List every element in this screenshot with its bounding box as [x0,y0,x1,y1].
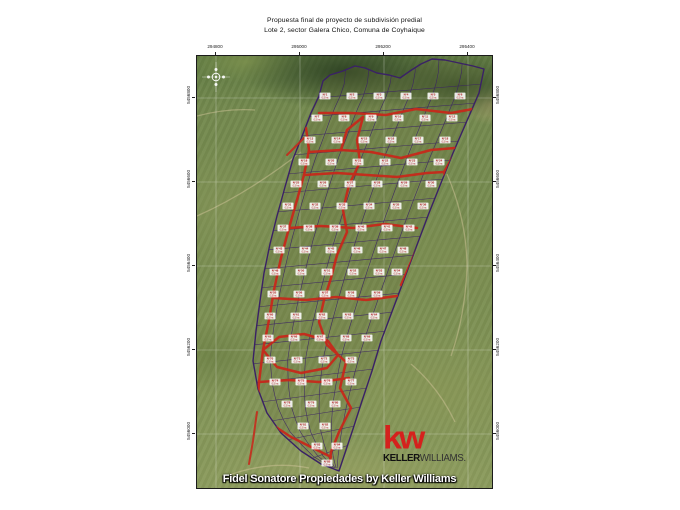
svg-text:0,5 ha: 0,5 ha [308,405,315,408]
lot-label: N°30,5 ha [374,93,385,100]
lot-label: N°750,5 ha [296,379,307,386]
svg-text:0,5 ha: 0,5 ha [348,361,355,364]
northing-label-left: 5456000 [186,422,191,440]
lot-label: N°730,5 ha [346,357,357,364]
lot-label: N°130,5 ha [305,137,316,144]
svg-text:0,5 ha: 0,5 ha [442,141,449,144]
svg-text:0,5 ha: 0,5 ha [364,339,371,342]
svg-text:0,5 ha: 0,5 ha [332,229,339,232]
tick-mark [493,349,496,350]
svg-text:0,5 ha: 0,5 ha [294,361,301,364]
lot-label: N°440,5 ha [300,247,311,254]
svg-text:0,5 ha: 0,5 ha [349,97,356,100]
lot-label: N°400,5 ha [356,225,367,232]
lot-label: N°500,5 ha [296,269,307,276]
svg-text:0,5 ha: 0,5 ha [420,207,427,210]
svg-text:0,5 ha: 0,5 ha [374,185,381,188]
svg-text:0,5 ha: 0,5 ha [321,361,328,364]
lot-label: N°140,5 ha [332,137,343,144]
svg-text:0,5 ha: 0,5 ha [291,339,298,342]
svg-text:0,5 ha: 0,5 ha [300,427,307,430]
svg-text:0,5 ha: 0,5 ha [306,229,313,232]
easting-label: 294800 [207,44,222,49]
svg-text:0,5 ha: 0,5 ha [339,207,346,210]
svg-text:0,5 ha: 0,5 ha [400,251,407,254]
svg-text:0,5 ha: 0,5 ha [324,464,331,467]
kw-logo-icon: kw [383,426,466,451]
svg-text:0,5 ha: 0,5 ha [348,295,355,298]
northing-label-left: 5456600 [186,170,191,188]
svg-text:0,5 ha: 0,5 ha [312,207,319,210]
lot-label: N°280,5 ha [372,181,383,188]
svg-text:0,5 ha: 0,5 ha [366,207,373,210]
lot-label: N°60,5 ha [455,93,466,100]
lot-label: N°800,5 ha [330,401,341,408]
svg-text:0,5 ha: 0,5 ha [371,317,378,320]
svg-text:0,5 ha: 0,5 ha [293,317,300,320]
lot-label: N°160,5 ha [386,137,397,144]
svg-text:0,5 ha: 0,5 ha [322,97,329,100]
lot-label: N°810,5 ha [298,423,309,430]
lot-label: N°430,5 ha [274,247,285,254]
svg-text:0,5 ha: 0,5 ha [301,163,308,166]
svg-text:0,5 ha: 0,5 ha [374,295,381,298]
lot-label: N°50,5 ha [428,93,439,100]
easting-label: 295200 [375,44,390,49]
lot-label: N°600,5 ha [265,313,276,320]
tick-mark [192,181,195,182]
lot-label: N°660,5 ha [289,335,300,342]
lot-label: N°480,5 ha [398,247,409,254]
svg-text:0,5 ha: 0,5 ha [430,97,437,100]
northing-label-left: 5456200 [186,338,191,356]
svg-text:0,5 ha: 0,5 ha [296,295,303,298]
svg-text:0,5 ha: 0,5 ha [345,317,352,320]
svg-text:0,5 ha: 0,5 ha [324,383,331,386]
lot-label: N°170,5 ha [413,137,424,144]
svg-text:0,5 ha: 0,5 ha [322,295,329,298]
lot-label: N°380,5 ha [304,225,315,232]
svg-text:0,5 ha: 0,5 ha [298,273,305,276]
svg-text:0,5 ha: 0,5 ha [280,229,287,232]
northing-label-right: 5456800 [495,86,500,104]
svg-text:0,5 ha: 0,5 ha [314,447,321,450]
tick-mark [493,433,496,434]
lot-label: N°710,5 ha [292,357,303,364]
svg-text:0,5 ha: 0,5 ha [324,273,331,276]
lot-label: N°10,5 ha [320,93,331,100]
lot-label: N°620,5 ha [317,313,328,320]
svg-text:0,5 ha: 0,5 ha [267,317,274,320]
svg-text:0,5 ha: 0,5 ha [361,141,368,144]
northing-label-right: 5456000 [495,422,500,440]
svg-text:0,5 ha: 0,5 ha [322,427,329,430]
svg-text:0,5 ha: 0,5 ha [409,163,416,166]
tick-mark [493,97,496,98]
svg-text:0,5 ha: 0,5 ha [376,273,383,276]
tick-mark [192,265,195,266]
lot-label: N°510,5 ha [322,269,333,276]
svg-text:0,5 ha: 0,5 ha [350,273,357,276]
svg-text:0,5 ha: 0,5 ha [293,185,300,188]
northing-label-left: 5456400 [186,254,191,272]
svg-text:0,5 ha: 0,5 ha [348,383,355,386]
svg-text:0,5 ha: 0,5 ha [394,273,401,276]
tick-mark [493,265,496,266]
lot-label: N°320,5 ha [310,203,321,210]
lot-label: N°560,5 ha [294,291,305,298]
lot-label: N°200,5 ha [326,159,337,166]
svg-text:0,5 ha: 0,5 ha [395,119,402,122]
lot-label: N°670,5 ha [315,335,326,342]
svg-text:0,5 ha: 0,5 ha [382,163,389,166]
lot-label: N°790,5 ha [306,401,317,408]
svg-text:0,5 ha: 0,5 ha [341,119,348,122]
svg-text:0,5 ha: 0,5 ha [401,185,408,188]
lot-label: N°830,5 ha [312,443,323,450]
svg-text:0,5 ha: 0,5 ha [320,185,327,188]
svg-text:0,5 ha: 0,5 ha [272,273,279,276]
lot-label: N°530,5 ha [374,269,385,276]
svg-text:0,5 ha: 0,5 ha [272,383,279,386]
lot-label: N°230,5 ha [407,159,418,166]
svg-text:0,5 ha: 0,5 ha [314,119,321,122]
lot-label: N°520,5 ha [348,269,359,276]
tick-mark [192,349,195,350]
lot-label: N°640,5 ha [369,313,380,320]
svg-text:0,5 ha: 0,5 ha [328,163,335,166]
svg-text:0,5 ha: 0,5 ha [284,405,291,408]
lot-label: N°360,5 ha [418,203,429,210]
lot-label: N°550,5 ha [268,291,279,298]
northing-label-right: 5456400 [495,254,500,272]
lot-label: N°770,5 ha [346,379,357,386]
svg-text:0,5 ha: 0,5 ha [415,141,422,144]
lot-label: N°110,5 ha [420,115,431,122]
lot-label: N°840,5 ha [332,443,343,450]
lot-label: N°150,5 ha [359,137,370,144]
tick-mark [192,433,195,434]
svg-text:0,5 ha: 0,5 ha [298,383,305,386]
lot-label: N°300,5 ha [426,181,437,188]
svg-text:0,5 ha: 0,5 ha [388,141,395,144]
lot-label: N°470,5 ha [378,247,389,254]
svg-text:0,5 ha: 0,5 ha [334,141,341,144]
lot-label: N°240,5 ha [434,159,445,166]
lot-label: N°330,5 ha [337,203,348,210]
svg-text:0,5 ha: 0,5 ha [393,207,400,210]
lot-label: N°740,5 ha [270,379,281,386]
lot-label: N°780,5 ha [282,401,293,408]
svg-text:0,5 ha: 0,5 ha [358,229,365,232]
lot-label: N°630,5 ha [343,313,354,320]
svg-text:0,5 ha: 0,5 ha [276,251,283,254]
svg-text:0,5 ha: 0,5 ha [403,97,410,100]
svg-text:0,5 ha: 0,5 ha [332,405,339,408]
lot-label: N°590,5 ha [372,291,383,298]
keller-williams-logo: kw KELLERWILLIAMS. [383,425,466,463]
lot-label: N°570,5 ha [320,291,331,298]
northing-label-left: 5456800 [186,86,191,104]
svg-text:0,5 ha: 0,5 ha [428,185,435,188]
svg-text:0,5 ha: 0,5 ha [380,251,387,254]
easting-label: 295400 [459,44,474,49]
svg-text:0,5 ha: 0,5 ha [368,119,375,122]
svg-text:0,5 ha: 0,5 ha [265,339,272,342]
northing-label-right: 5456200 [495,338,500,356]
lot-label: N°20,5 ha [347,93,358,100]
svg-text:0,5 ha: 0,5 ha [436,163,443,166]
svg-text:0,5 ha: 0,5 ha [457,97,464,100]
svg-text:0,5 ha: 0,5 ha [307,141,314,144]
svg-text:0,5 ha: 0,5 ha [354,251,361,254]
lot-label: N°260,5 ha [318,181,329,188]
map-caption: Fidel Sonatore Propiedades by Keller Wil… [197,473,482,485]
svg-text:0,5 ha: 0,5 ha [285,207,292,210]
lot-label: N°70,5 ha [312,115,323,122]
lot-label: N°390,5 ha [330,225,341,232]
page: Propuesta final de proyecto de subdivisi… [0,0,680,510]
lot-label: N°410,5 ha [382,225,393,232]
svg-text:0,5 ha: 0,5 ha [406,229,413,232]
svg-text:0,5 ha: 0,5 ha [334,447,341,450]
lot-label: N°610,5 ha [291,313,302,320]
lot-label: N°250,5 ha [291,181,302,188]
lot-label: N°490,5 ha [270,269,281,276]
lot-label: N°720,5 ha [319,357,330,364]
svg-text:0,5 ha: 0,5 ha [302,251,309,254]
lot-label: N°350,5 ha [391,203,402,210]
lot-label: N°310,5 ha [283,203,294,210]
lot-label: N°340,5 ha [364,203,375,210]
svg-text:0,5 ha: 0,5 ha [449,119,456,122]
svg-text:0,5 ha: 0,5 ha [347,185,354,188]
lot-label: N°270,5 ha [345,181,356,188]
lot-label: N°580,5 ha [346,291,357,298]
svg-text:0,5 ha: 0,5 ha [267,361,274,364]
lot-label: N°540,5 ha [392,269,403,276]
lot-label: N°460,5 ha [352,247,363,254]
lot-label: N°100,5 ha [393,115,404,122]
lot-label: N°370,5 ha [278,225,289,232]
easting-label: 295000 [291,44,306,49]
svg-text:0,5 ha: 0,5 ha [376,97,383,100]
svg-text:0,5 ha: 0,5 ha [319,317,326,320]
svg-text:0,5 ha: 0,5 ha [343,339,350,342]
lot-label: N°680,5 ha [341,335,352,342]
lot-label: N°650,5 ha [263,335,274,342]
svg-text:0,5 ha: 0,5 ha [384,229,391,232]
map-title-line1: Propuesta final de proyecto de subdivisi… [196,16,493,26]
tick-mark [493,181,496,182]
svg-text:0,5 ha: 0,5 ha [270,295,277,298]
lot-label: N°120,5 ha [447,115,458,122]
svg-text:0,5 ha: 0,5 ha [328,251,335,254]
lot-label: N°290,5 ha [399,181,410,188]
lot-label: N°40,5 ha [401,93,412,100]
lot-label: N°190,5 ha [299,159,310,166]
lot-label: N°850,5 ha [322,460,333,467]
map-frame: N°10,5 haN°20,5 haN°30,5 haN°40,5 haN°50… [196,55,493,489]
lot-label: N°180,5 ha [440,137,451,144]
lot-label: N°690,5 ha [362,335,373,342]
map-title: Propuesta final de proyecto de subdivisi… [196,16,493,35]
lot-label: N°700,5 ha [265,357,276,364]
svg-text:0,5 ha: 0,5 ha [317,339,324,342]
lot-label: N°210,5 ha [353,159,364,166]
northing-label-right: 5456600 [495,170,500,188]
lot-label: N°220,5 ha [380,159,391,166]
tick-mark [192,97,195,98]
lot-label: N°820,5 ha [320,423,331,430]
lot-label: N°420,5 ha [404,225,415,232]
lot-label: N°80,5 ha [339,115,350,122]
lot-label: N°760,5 ha [322,379,333,386]
lot-label: N°450,5 ha [326,247,337,254]
svg-text:0,5 ha: 0,5 ha [422,119,429,122]
svg-text:0,5 ha: 0,5 ha [355,163,362,166]
compass-icon [202,62,230,92]
lot-label: N°90,5 ha [366,115,377,122]
map-title-line2: Lote 2, sector Galera Chico, Comuna de C… [196,26,493,36]
